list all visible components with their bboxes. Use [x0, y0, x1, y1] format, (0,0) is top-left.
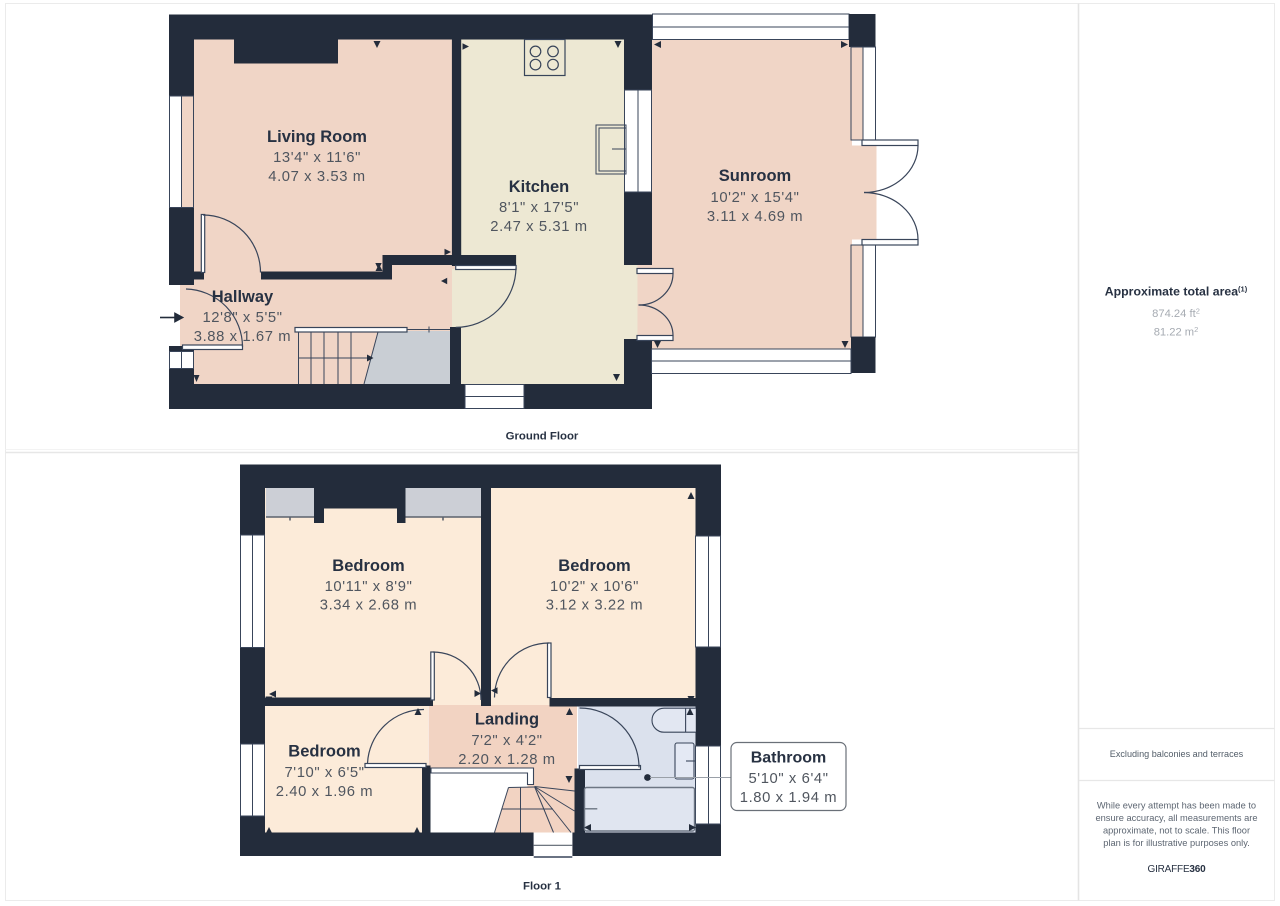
- svg-text:12'8" x 5'5": 12'8" x 5'5": [202, 310, 282, 326]
- svg-text:81.22 m2: 81.22 m2: [1154, 325, 1199, 339]
- svg-text:Living Room: Living Room: [267, 128, 367, 146]
- svg-text:3.11 x 4.69 m: 3.11 x 4.69 m: [707, 209, 803, 225]
- svg-text:874.24 ft2: 874.24 ft2: [1152, 307, 1200, 321]
- svg-text:10'2" x 15'4": 10'2" x 15'4": [711, 190, 800, 206]
- svg-text:2.40 x 1.96 m: 2.40 x 1.96 m: [276, 784, 373, 800]
- svg-text:Bedroom: Bedroom: [332, 557, 404, 575]
- svg-text:plan is for illustrative purpo: plan is for illustrative purposes only.: [1103, 838, 1250, 848]
- svg-text:Ground Floor: Ground Floor: [506, 431, 579, 443]
- svg-text:Sunroom: Sunroom: [719, 167, 791, 185]
- svg-text:Bathroom: Bathroom: [751, 750, 827, 767]
- svg-text:Hallway: Hallway: [212, 288, 274, 306]
- svg-text:3.88 x 1.67 m: 3.88 x 1.67 m: [194, 329, 291, 345]
- svg-text:Floor 1: Floor 1: [523, 881, 562, 893]
- svg-text:Bedroom: Bedroom: [558, 557, 630, 575]
- svg-text:4.07 x 3.53 m: 4.07 x 3.53 m: [268, 169, 365, 185]
- svg-text:Bedroom: Bedroom: [288, 743, 360, 761]
- svg-text:7'10" x 6'5": 7'10" x 6'5": [284, 765, 364, 781]
- svg-text:2.20 x 1.28 m: 2.20 x 1.28 m: [458, 752, 555, 768]
- svg-text:1.80 x 1.94 m: 1.80 x 1.94 m: [740, 790, 837, 806]
- svg-text:10'2" x 10'6": 10'2" x 10'6": [550, 579, 639, 595]
- svg-text:approximate, not to scale. Thi: approximate, not to scale. This floor: [1103, 826, 1250, 836]
- svg-text:3.34 x 2.68 m: 3.34 x 2.68 m: [320, 598, 417, 614]
- svg-text:5'10" x 6'4": 5'10" x 6'4": [748, 771, 828, 787]
- svg-text:3.12 x 3.22 m: 3.12 x 3.22 m: [546, 598, 643, 614]
- svg-text:GIRAFFE360: GIRAFFE360: [1147, 864, 1206, 875]
- svg-text:Approximate total area(1): Approximate total area(1): [1105, 285, 1248, 299]
- svg-text:13'4" x 11'6": 13'4" x 11'6": [273, 150, 361, 166]
- svg-text:7'2" x 4'2": 7'2" x 4'2": [471, 733, 542, 749]
- svg-text:2.47 x 5.31 m: 2.47 x 5.31 m: [490, 219, 587, 235]
- svg-text:Landing: Landing: [475, 711, 539, 729]
- svg-text:8'1" x 17'5": 8'1" x 17'5": [499, 200, 579, 216]
- svg-text:Kitchen: Kitchen: [509, 178, 570, 196]
- svg-text:While every attempt has been m: While every attempt has been made to: [1097, 801, 1256, 811]
- svg-text:ensure accuracy, all measureme: ensure accuracy, all measurements are: [1095, 813, 1257, 823]
- svg-text:10'11" x 8'9": 10'11" x 8'9": [325, 579, 413, 595]
- svg-text:Excluding balconies and terrac: Excluding balconies and terraces: [1110, 749, 1244, 759]
